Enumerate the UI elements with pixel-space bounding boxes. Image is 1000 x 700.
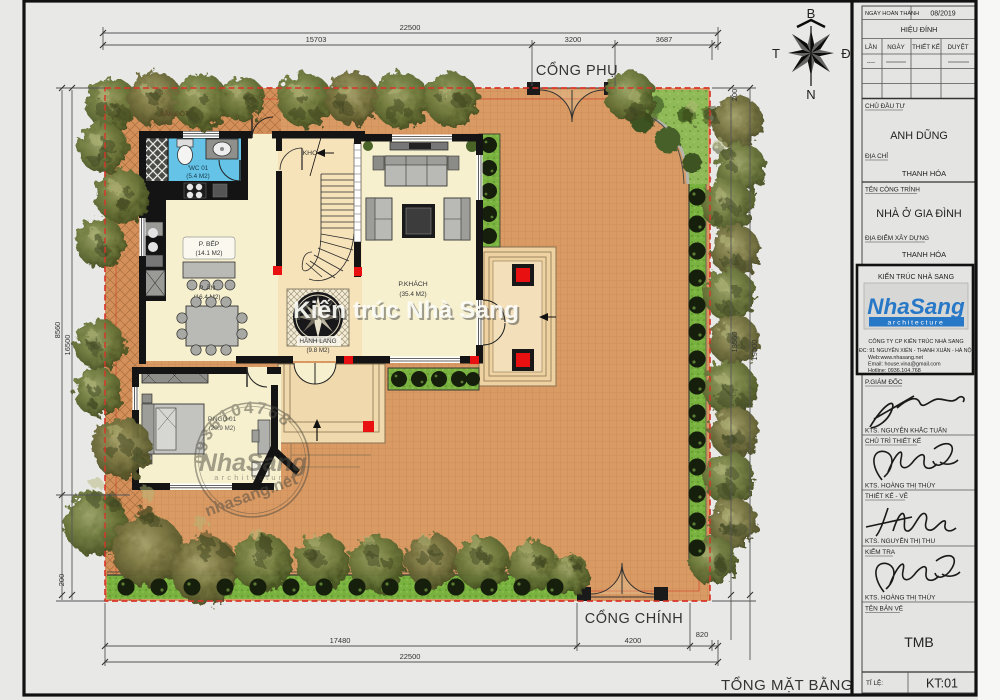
svg-text:TÊN BẢN VẼ: TÊN BẢN VẼ [865,604,903,613]
svg-text:T: T [772,46,780,61]
svg-text:08/2019: 08/2019 [930,11,955,18]
svg-text:P. ĂN: P. ĂN [199,283,216,292]
svg-text:B: B [807,6,816,21]
svg-text:Kiến trúc Nhà Sang: Kiến trúc Nhà Sang [293,297,519,324]
svg-text:TỔNG MẶT BẰNG: TỔNG MẶT BẰNG [721,676,853,694]
svg-text:22500: 22500 [400,652,421,661]
svg-text:TỈ LỆ:: TỈ LỆ: [866,678,883,687]
svg-text:ĐỊA ĐIỂM XÂY DỰNG: ĐỊA ĐIỂM XÂY DỰNG [865,233,929,242]
svg-text:Web:www.nhasang.net: Web:www.nhasang.net [868,355,924,361]
svg-text:KTS. HOÀNG THỊ THÚY: KTS. HOÀNG THỊ THÚY [865,593,936,602]
svg-text:Email: house.vina@gmail.com: Email: house.vina@gmail.com [868,362,941,368]
svg-text:CỔNG CHÍNH: CỔNG CHÍNH [585,609,683,627]
svg-text:19000: 19000 [750,340,759,361]
svg-text:TÊN CÔNG TRÌNH: TÊN CÔNG TRÌNH [865,185,920,194]
svg-text:DUYỆT: DUYỆT [948,43,969,51]
svg-text:KIỂM TRA: KIỂM TRA [865,547,896,556]
svg-text:KT:01: KT:01 [926,677,958,691]
svg-text:----: ---- [867,59,875,66]
svg-text:KHO: KHO [303,150,318,157]
svg-text:KTS. HOÀNG THỊ THÚY: KTS. HOÀNG THỊ THÚY [865,481,936,490]
svg-text:18560: 18560 [730,332,739,353]
svg-text:architecture: architecture [887,320,944,327]
svg-text:THIẾT KẾ: THIẾT KẾ [912,44,940,51]
svg-text:THANH HÓA: THANH HÓA [902,250,946,259]
svg-text:TMB: TMB [904,634,934,650]
svg-text:N: N [806,87,815,102]
svg-text:KTS. NGUYỄN THỊ THU: KTS. NGUYỄN THỊ THU [865,536,935,545]
svg-text:ĐC: 91 NGUYỄN XIỂN - THANH XUÂ: ĐC: 91 NGUYỄN XIỂN - THANH XUÂN - HÀ NỘI [859,347,973,354]
svg-text:3200: 3200 [565,35,582,44]
svg-text:NhaSang: NhaSang [867,294,965,319]
svg-text:Đ: Đ [841,46,850,61]
svg-text:NGÀY HOÀN THÀNH: NGÀY HOÀN THÀNH [865,10,919,17]
svg-text:THANH HÓA: THANH HÓA [902,169,946,178]
svg-text:(14.1 M2): (14.1 M2) [196,250,223,257]
svg-text:ANH DŨNG: ANH DŨNG [890,129,948,142]
svg-text:NHÀ Ở GIA ĐÌNH: NHÀ Ở GIA ĐÌNH [876,207,961,220]
svg-text:16500: 16500 [63,335,72,356]
svg-text:(5.4 M2): (5.4 M2) [186,173,209,180]
svg-text:NGÀY: NGÀY [887,44,905,51]
svg-text:17480: 17480 [330,636,351,645]
svg-text:ĐỊA CHỈ: ĐỊA CHỈ [865,151,888,160]
svg-text:22500: 22500 [400,23,421,32]
svg-text:8560: 8560 [53,322,62,339]
svg-text:LẦN: LẦN [865,44,877,51]
svg-text:3687: 3687 [656,35,673,44]
svg-text:820: 820 [696,630,709,639]
svg-text:CỔNG PHỤ: CỔNG PHỤ [536,61,618,79]
svg-text:200: 200 [730,89,739,102]
svg-text:Hotline: 0936.104.768: Hotline: 0936.104.768 [868,368,921,374]
svg-text:SÂN ĐỖT: SÂN ĐỖT [160,109,189,118]
svg-text:CÔNG TY CP KIẾN TRÚC NHÀ SANG: CÔNG TY CP KIẾN TRÚC NHÀ SANG [868,338,963,345]
svg-text:HIỆU ĐÍNH: HIỆU ĐÍNH [901,25,938,34]
svg-text:(9.8 M2): (9.8 M2) [306,347,329,354]
svg-text:P.KHÁCH: P.KHÁCH [398,279,427,288]
svg-text:15703: 15703 [306,35,327,44]
svg-text:4200: 4200 [625,636,642,645]
svg-text:HÀNH LANG: HÀNH LANG [299,336,336,345]
svg-text:'WC 01: 'WC 01 [188,165,209,172]
svg-text:200: 200 [57,574,66,587]
